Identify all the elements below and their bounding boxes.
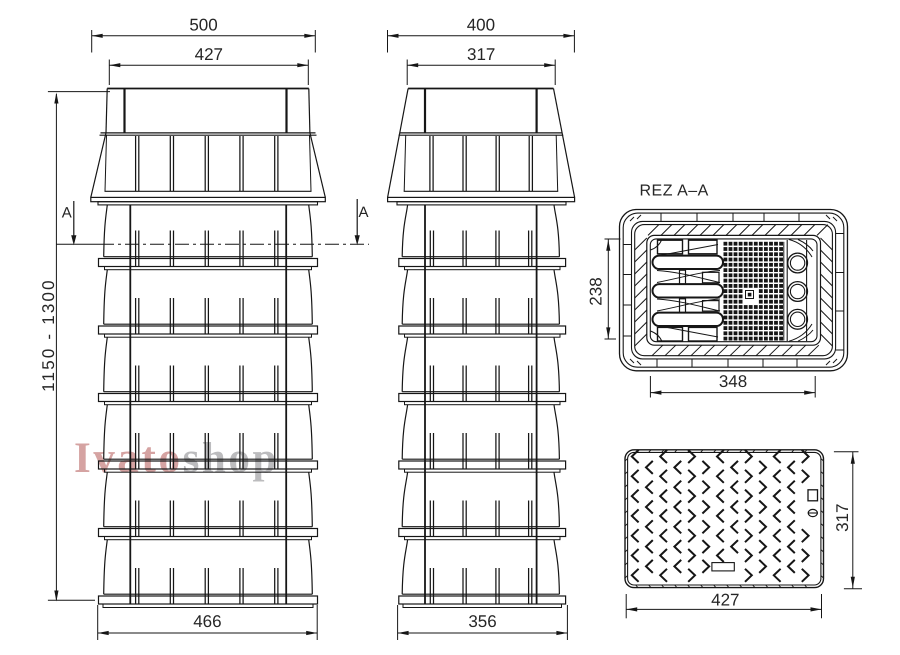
svg-text:REZ A–A: REZ A–A	[640, 183, 709, 200]
svg-text:238: 238	[587, 277, 606, 305]
svg-text:A: A	[358, 204, 368, 221]
svg-text:427: 427	[195, 45, 223, 64]
svg-text:500: 500	[189, 16, 217, 35]
svg-text:1150 - 1300: 1150 - 1300	[39, 278, 58, 392]
svg-text:317: 317	[467, 45, 495, 64]
svg-text:427: 427	[711, 591, 739, 610]
svg-text:400: 400	[467, 16, 495, 35]
svg-text:348: 348	[719, 372, 747, 391]
svg-text:466: 466	[193, 612, 221, 631]
svg-text:317: 317	[833, 504, 852, 532]
svg-text:A: A	[62, 205, 72, 222]
svg-text:356: 356	[468, 612, 496, 631]
